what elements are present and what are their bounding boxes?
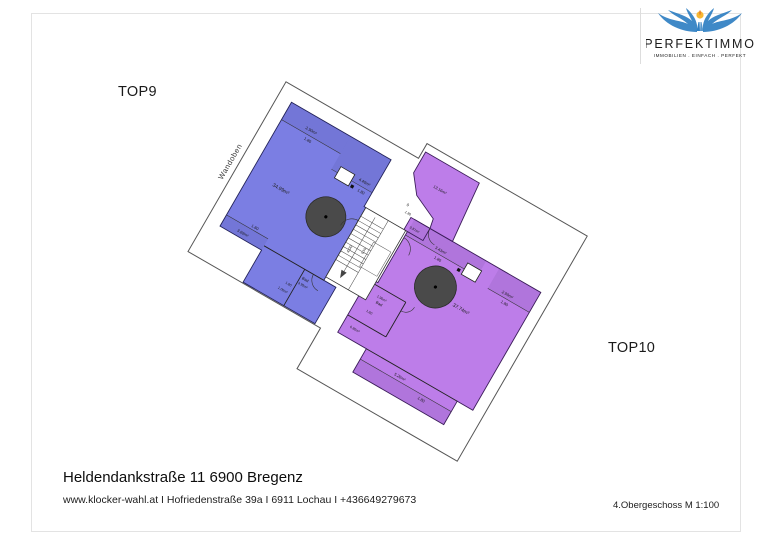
floorplan-canvas: Wandoben 34.99m² 2.90m² 1.80 4.40m² 1.80… <box>0 0 770 545</box>
